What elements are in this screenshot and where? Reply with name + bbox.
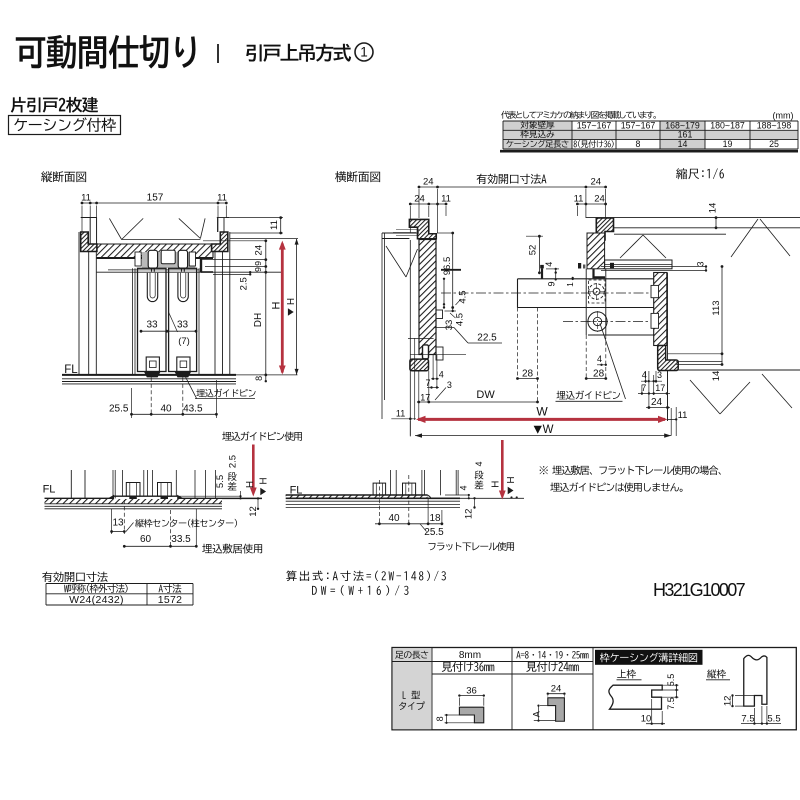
svg-text:DH: DH xyxy=(253,313,264,327)
svg-text:157~167: 157~167 xyxy=(621,120,656,130)
svg-text:W24(2432): W24(2432) xyxy=(69,594,124,606)
svg-text:22.5: 22.5 xyxy=(477,333,497,344)
svg-text:14: 14 xyxy=(711,371,722,382)
svg-text:7.5: 7.5 xyxy=(666,697,676,710)
svg-text:14: 14 xyxy=(678,139,688,149)
svg-text:5.5: 5.5 xyxy=(666,674,676,687)
svg-text:9: 9 xyxy=(547,281,557,286)
svg-text:8mm: 8mm xyxy=(459,650,481,661)
svg-text:4.5: 4.5 xyxy=(455,313,466,326)
svg-text:1: 1 xyxy=(360,45,368,60)
svg-text:7.5: 7.5 xyxy=(741,713,754,724)
svg-text:A: A xyxy=(532,711,542,717)
svg-text:4: 4 xyxy=(439,370,444,380)
svg-text:18: 18 xyxy=(429,513,441,524)
svg-text:(7): (7) xyxy=(178,336,190,347)
svg-text:24: 24 xyxy=(254,245,265,256)
svg-text:11: 11 xyxy=(441,193,451,204)
svg-text:H: H xyxy=(506,476,517,483)
svg-text:4: 4 xyxy=(459,485,469,490)
svg-text:43.5: 43.5 xyxy=(183,403,203,414)
svg-text:9: 9 xyxy=(253,261,263,266)
svg-text:4.5: 4.5 xyxy=(458,290,469,303)
svg-text:28: 28 xyxy=(522,368,534,379)
svg-text:40: 40 xyxy=(160,403,172,414)
svg-text:19: 19 xyxy=(723,139,733,149)
svg-text:10: 10 xyxy=(641,714,652,725)
svg-text:2.5: 2.5 xyxy=(238,277,249,290)
svg-text:24: 24 xyxy=(423,177,434,188)
svg-text:4: 4 xyxy=(597,354,602,364)
svg-text:8: 8 xyxy=(636,139,641,149)
svg-text:3: 3 xyxy=(447,380,452,390)
svg-text:24: 24 xyxy=(551,683,562,694)
svg-text:11: 11 xyxy=(574,193,584,204)
svg-text:13: 13 xyxy=(112,518,124,529)
svg-text:40: 40 xyxy=(388,513,400,524)
svg-text:3: 3 xyxy=(696,261,706,266)
svg-text:11: 11 xyxy=(269,220,280,230)
svg-text:H: H xyxy=(490,481,501,488)
svg-text:11: 11 xyxy=(217,193,227,204)
svg-text:25: 25 xyxy=(769,139,779,149)
svg-text:7: 7 xyxy=(425,378,430,388)
svg-text:1: 1 xyxy=(565,282,575,287)
svg-text:2.5: 2.5 xyxy=(227,455,238,468)
svg-text:H321G10007: H321G10007 xyxy=(653,580,746,600)
svg-text:4: 4 xyxy=(544,262,554,267)
svg-text:4: 4 xyxy=(474,461,484,466)
svg-text:25.5: 25.5 xyxy=(109,403,129,414)
svg-text:24: 24 xyxy=(591,177,602,188)
svg-text:8: 8 xyxy=(254,376,264,381)
svg-text:H: H xyxy=(245,481,256,488)
svg-text:W: W xyxy=(543,424,554,436)
svg-text:60: 60 xyxy=(140,534,152,545)
svg-text:157~167: 157~167 xyxy=(577,120,612,130)
svg-text:14: 14 xyxy=(707,203,718,214)
svg-text:4: 4 xyxy=(642,370,647,380)
svg-text:W: W xyxy=(536,405,548,419)
svg-text:H: H xyxy=(258,477,269,484)
svg-text:12: 12 xyxy=(248,506,259,517)
svg-text:33: 33 xyxy=(444,320,455,331)
svg-text:17: 17 xyxy=(655,383,665,393)
svg-text:96.5: 96.5 xyxy=(442,257,453,276)
svg-text:33.5: 33.5 xyxy=(171,534,191,545)
svg-text:3: 3 xyxy=(657,370,662,380)
svg-text:11: 11 xyxy=(678,410,688,421)
svg-text:FL: FL xyxy=(43,484,56,496)
svg-text:8: 8 xyxy=(435,716,445,721)
svg-text:H: H xyxy=(270,301,282,309)
svg-text:24: 24 xyxy=(414,193,425,204)
svg-text:DW: DW xyxy=(476,389,495,401)
svg-text:12: 12 xyxy=(463,509,474,520)
svg-text:(mm): (mm) xyxy=(773,111,794,121)
svg-text:1572: 1572 xyxy=(158,594,183,606)
svg-text:33: 33 xyxy=(177,320,189,331)
svg-text:188~198: 188~198 xyxy=(757,120,792,130)
svg-text:36: 36 xyxy=(466,685,477,696)
svg-text:180~187: 180~187 xyxy=(710,120,745,130)
svg-text:157: 157 xyxy=(147,193,164,204)
svg-text:5.5: 5.5 xyxy=(215,475,226,488)
svg-text:113: 113 xyxy=(711,300,722,315)
svg-text:11: 11 xyxy=(396,409,405,419)
svg-text:11: 11 xyxy=(81,193,91,204)
svg-text:5.5: 5.5 xyxy=(767,713,780,724)
svg-text:24: 24 xyxy=(594,193,605,204)
svg-text:12: 12 xyxy=(722,696,733,707)
svg-text:24: 24 xyxy=(651,397,663,408)
svg-text:33: 33 xyxy=(146,320,158,331)
svg-text:28: 28 xyxy=(593,368,605,379)
svg-text:H: H xyxy=(286,298,297,305)
svg-text:9: 9 xyxy=(253,267,263,272)
svg-text:52: 52 xyxy=(527,245,538,256)
svg-text:25.5: 25.5 xyxy=(424,527,444,538)
